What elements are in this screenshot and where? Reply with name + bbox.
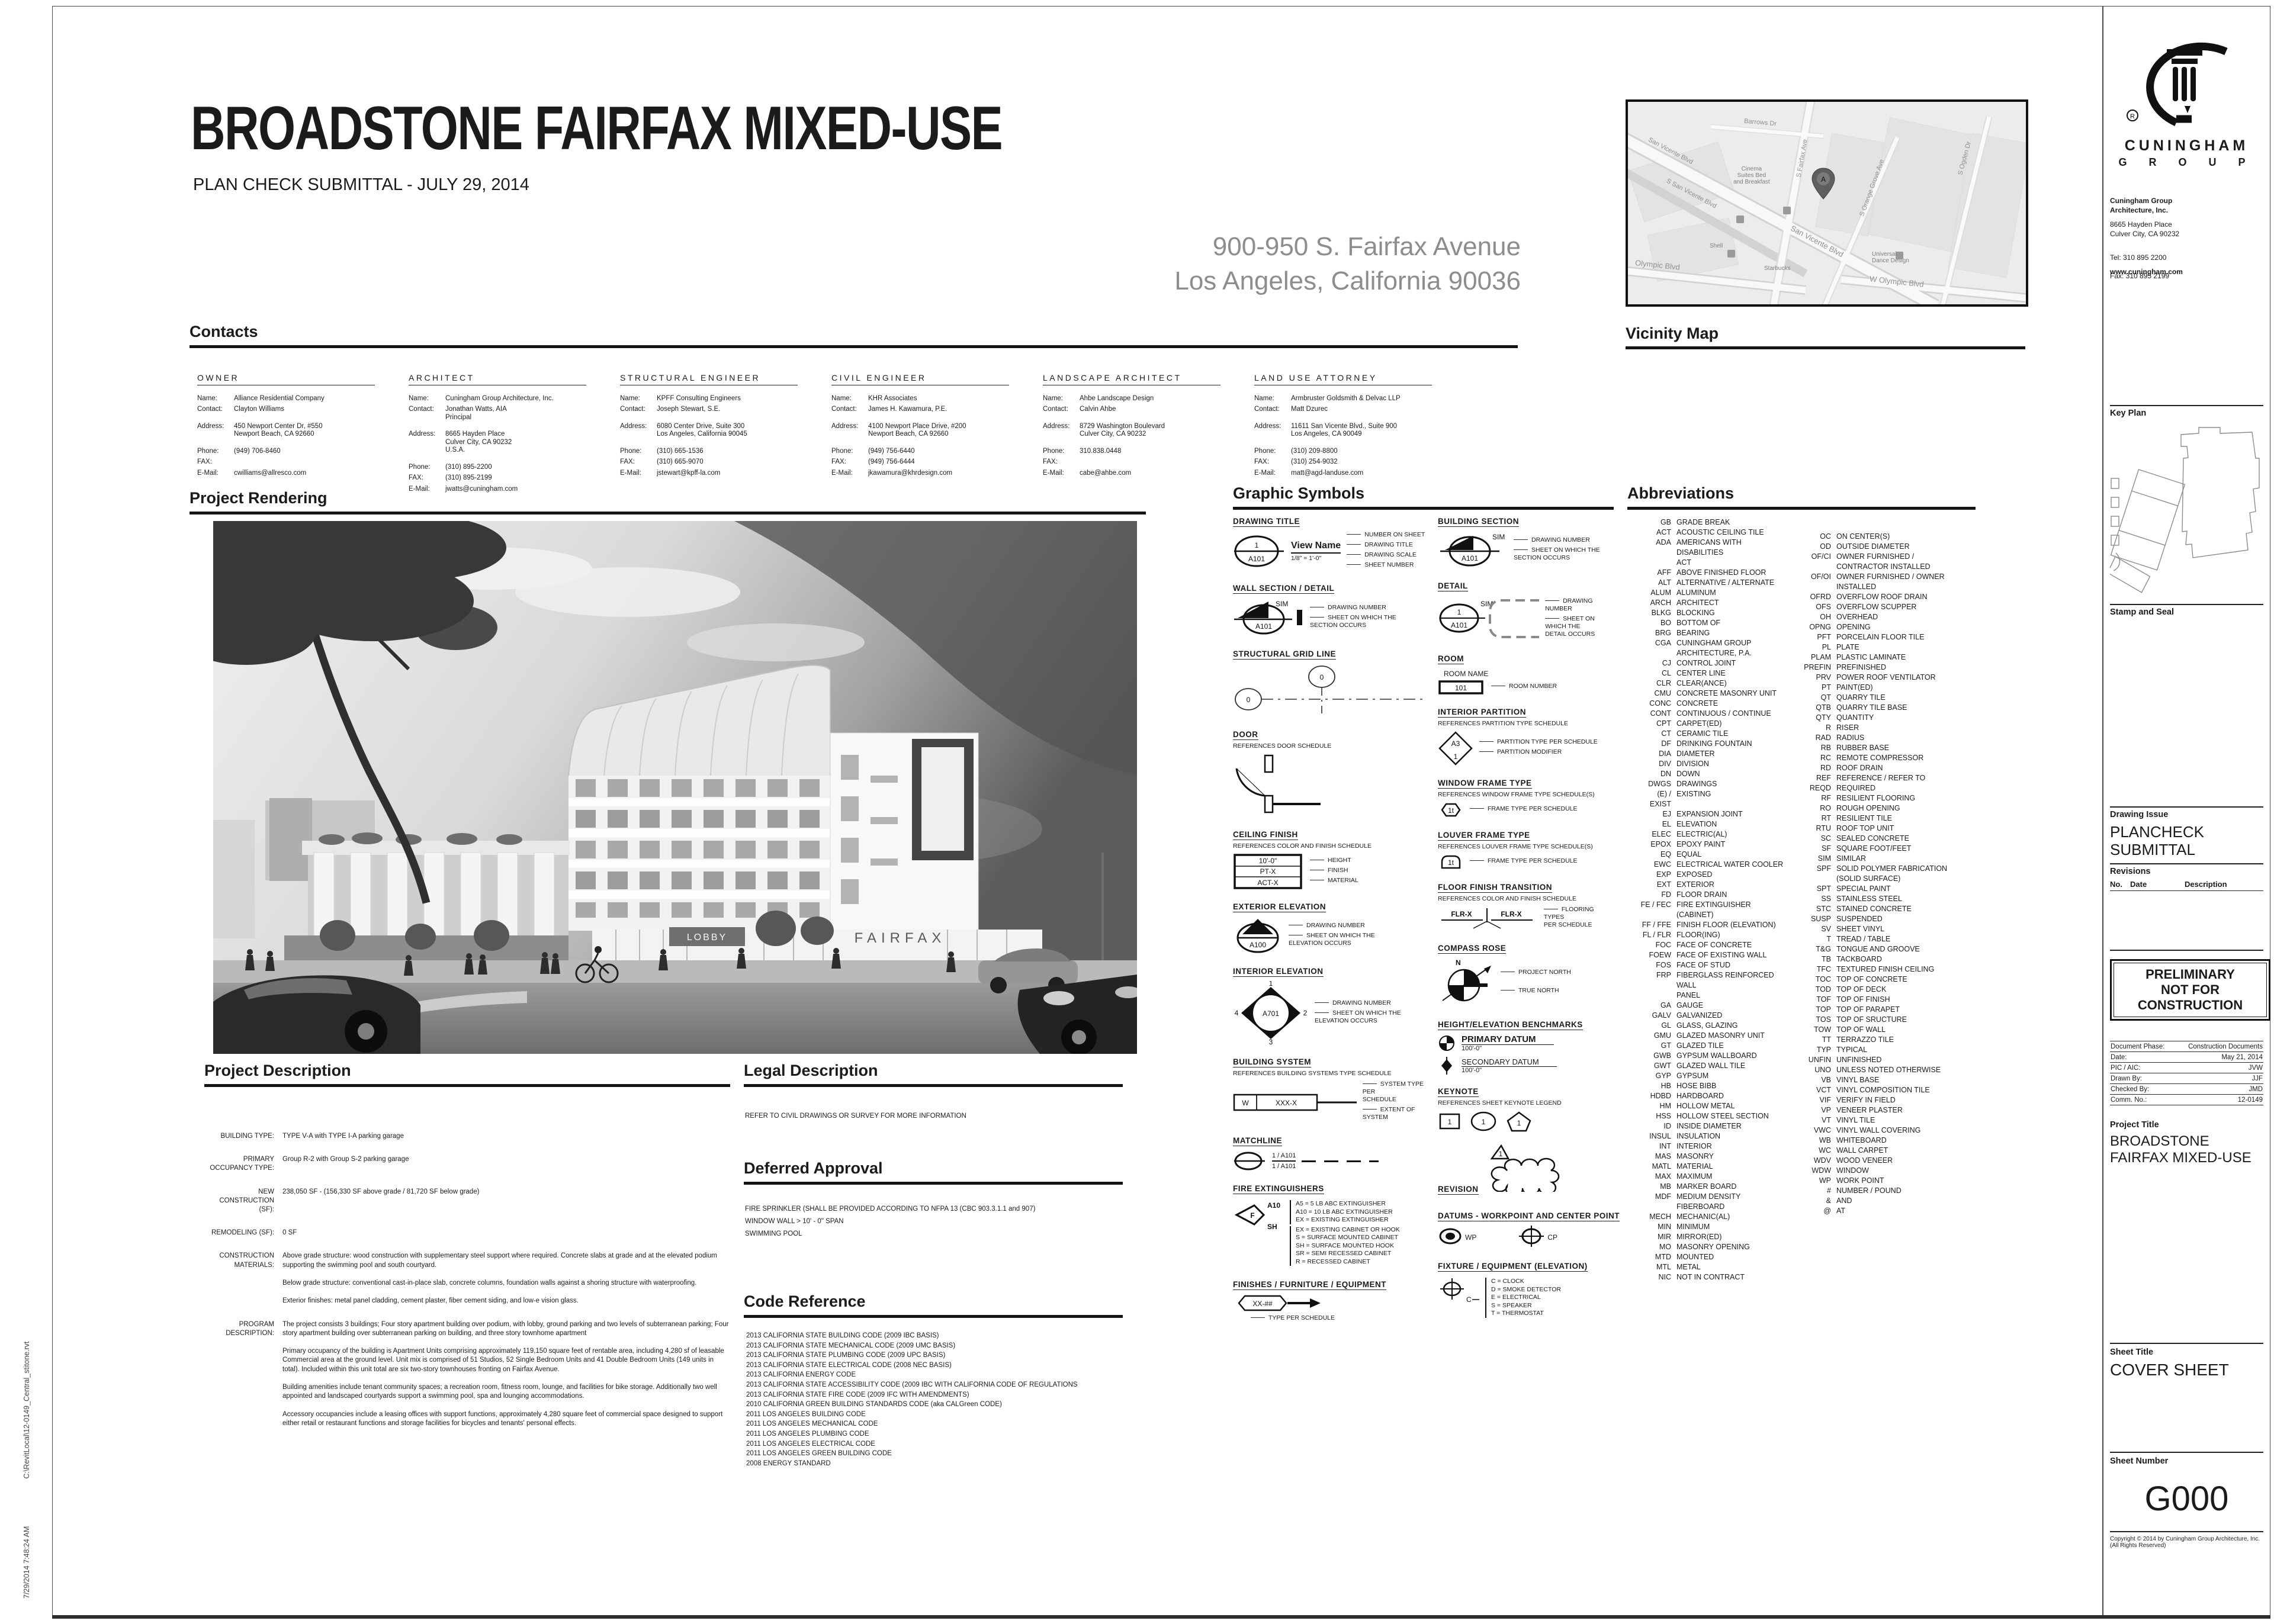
abbreviation-code: HB — [1627, 1081, 1676, 1091]
contact-name: KHR Associates — [868, 395, 1007, 403]
info-value: JJF — [2251, 1075, 2263, 1082]
svg-text:1: 1 — [1482, 1118, 1486, 1126]
abbreviation-code: TT — [1793, 1035, 1836, 1045]
abbreviation-row: EWC ELECTRICAL WATER COOLER — [1627, 860, 1786, 870]
abbreviation-row: T&G TONGUE AND GROOVE — [1793, 944, 1971, 954]
sheet-title-label: Sheet Title — [2110, 1348, 2263, 1357]
abbreviation-code: SIM — [1793, 854, 1836, 864]
abbreviation-code: RB — [1793, 743, 1836, 753]
abbreviation-row: DWGS DRAWINGS — [1627, 779, 1786, 789]
abbreviation-code: FOS — [1627, 960, 1676, 970]
abbreviation-description: SOLID POLYMER FABRICATION (SOLID SURFACE… — [1836, 864, 1971, 884]
gs-fixture-equipment: FIXTURE / EQUIPMENT (ELEVATION) C C = CL… — [1438, 1261, 1615, 1320]
abbreviation-code: RO — [1793, 803, 1836, 813]
contact-email: matt@agd-landuse.com — [1291, 469, 1430, 478]
abbreviation-description: CLEAR(ANCE) — [1676, 678, 1786, 689]
abbreviation-description: ABOVE FINISHED FLOOR — [1676, 568, 1786, 578]
room-number-symbol: 101 — [1438, 680, 1485, 695]
workpoint-symbol — [1438, 1227, 1463, 1247]
abbreviation-code: RD — [1793, 763, 1836, 773]
contact-phone: (310) 209-8800 — [1291, 448, 1430, 456]
svg-text:101: 101 — [1455, 684, 1467, 692]
abbreviation-code: OPNG — [1793, 622, 1836, 632]
abbreviation-row: FF / FFE FINISH FLOOR (ELEVATION) — [1627, 920, 1786, 930]
abbreviation-code: PREFIN — [1793, 663, 1836, 673]
info-row: PIC / AIC: JVW — [2110, 1062, 2263, 1073]
abbreviation-row: VWC VINYL WALL COVERING — [1793, 1125, 1971, 1136]
abbreviation-row: PRV POWER ROOF VENTILATOR — [1793, 673, 1971, 683]
abbreviation-description: RESILIENT FLOORING — [1836, 793, 1971, 803]
pd-label: NEW CONSTRUCTION (SF): — [204, 1188, 282, 1215]
gs-building-section: BUILDING SECTION 1 A101 SIM DRAWING NUMB… — [1438, 516, 1615, 569]
svg-text:1t: 1t — [1448, 858, 1454, 867]
door-symbol — [1233, 753, 1322, 815]
abbreviation-row: OFRD OVERFLOW ROOF DRAIN — [1793, 592, 1971, 602]
abbreviation-code: WB — [1793, 1136, 1836, 1146]
abbreviations-heading: Abbreviations — [1627, 484, 1734, 503]
abbreviation-description: ELECTRIC(AL) — [1676, 829, 1786, 840]
abbreviation-row: INT INTERIOR — [1627, 1141, 1786, 1152]
rendering-fairfax-sign: FAIRFAX — [855, 930, 946, 946]
svg-text:SH: SH — [1267, 1223, 1277, 1231]
abbreviation-description: UNLESS NOTED OTHERWISE — [1836, 1065, 1971, 1075]
abbreviation-description: FACE OF STUD — [1676, 960, 1786, 970]
abbreviation-code: PT — [1793, 683, 1836, 693]
detail-symbol: 1 A101 SIM — [1438, 596, 1539, 642]
svg-text:1: 1 — [1499, 1150, 1503, 1158]
fixture-legend: C = CLOCKD = SMOKE DETECTORE = ELECTRICA… — [1485, 1278, 1561, 1318]
abbreviation-code: VWC — [1793, 1125, 1836, 1136]
abbreviation-row: FOEW FACE OF EXISTING WALL — [1627, 950, 1786, 960]
abbreviation-row: RO ROUGH OPENING — [1793, 803, 1971, 813]
plot-file-path: C:\RevitLocal\12-0149_Central_stitone.rv… — [23, 1342, 31, 1479]
project-rendering-image: LOBBY FAIRFAX — [213, 521, 1137, 1054]
contacts-list: OWNER Name:Alliance Residential Company … — [197, 374, 1500, 496]
drawing-title-symbol: 1 A101 — [1233, 534, 1285, 568]
gs-finishes-furniture-equipment: FINISHES / FURNITURE / EQUIPMENT XX-## T… — [1233, 1279, 1432, 1322]
abbreviation-row: RAD RADIUS — [1793, 733, 1971, 743]
abbreviation-code: WDW — [1793, 1166, 1836, 1176]
deferred-approval-item: WINDOW WALL > 10' - 0" SPAN — [745, 1215, 1136, 1228]
abbreviation-code: VIF — [1793, 1095, 1836, 1105]
abbreviation-code: TOF — [1793, 995, 1836, 1005]
abbreviation-code: TB — [1793, 954, 1836, 964]
abbreviation-description: EQUAL — [1676, 850, 1786, 860]
abbreviation-row: ACT ACOUSTIC CEILING TILE — [1627, 528, 1786, 538]
abbreviation-code: BLKG — [1627, 608, 1676, 618]
abbreviation-row: CMU CONCRETE MASONRY UNIT — [1627, 689, 1786, 699]
svg-text:1: 1 — [1262, 609, 1266, 618]
abbreviation-code: MO — [1627, 1242, 1676, 1252]
firm-phone: Tel: 310 895 2200 Fax: 310 895 2199 — [2110, 244, 2263, 290]
svg-text:1: 1 — [1255, 541, 1259, 549]
abbreviation-description: FIBERGLASS REINFORCED WALL PANEL — [1676, 970, 1786, 1001]
abbreviation-description: STAINED CONCRETE — [1836, 904, 1971, 914]
code-reference-list: 2013 CALIFORNIA STATE BUILDING CODE (200… — [746, 1331, 1161, 1468]
svg-text:N: N — [1456, 959, 1461, 967]
svg-text:2: 2 — [1303, 1009, 1308, 1017]
firm-name-2: G R O U P — [2110, 156, 2263, 169]
project-description-row: NEW CONSTRUCTION (SF): 238,050 SF - (156… — [204, 1188, 730, 1215]
abbreviation-description: MINIMUM — [1676, 1222, 1786, 1232]
abbreviation-row: SC SEALED CONCRETE — [1793, 834, 1971, 844]
abbreviation-description: AND — [1836, 1196, 1971, 1206]
louver-frame-symbol: 1t — [1438, 854, 1464, 870]
abbreviation-description: VENEER PLASTER — [1836, 1105, 1971, 1115]
abbreviation-row: EQ EQUAL — [1627, 850, 1786, 860]
contact-role: CIVIL ENGINEER — [831, 374, 1009, 385]
poi-cinema: Cinema Suites Bed and Breakfast — [1733, 166, 1770, 185]
pd-label: PRIMARY OCCUPANCY TYPE: — [204, 1155, 282, 1173]
abbreviation-code: MAS — [1627, 1152, 1676, 1162]
abbreviation-row: SS STAINLESS STEEL — [1793, 894, 1971, 904]
contact-fax: (310) 895-2199 — [445, 474, 584, 483]
abbreviation-code: MB — [1627, 1182, 1676, 1192]
abbreviation-code: HDBD — [1627, 1091, 1676, 1101]
abbreviation-code: EWC — [1627, 860, 1676, 870]
abbreviation-row: VIF VERIFY IN FIELD — [1793, 1095, 1971, 1105]
contact-card: OWNER Name:Alliance Residential Company … — [197, 374, 409, 496]
abbreviation-code: T — [1793, 934, 1836, 944]
info-value: 12-0149 — [2238, 1096, 2263, 1104]
code-reference-item: 2013 CALIFORNIA STATE FIRE CODE (2009 IF… — [746, 1390, 1161, 1400]
info-label: Comm. No.: — [2111, 1096, 2147, 1104]
abbreviation-row: GWT GLAZED WALL TILE — [1627, 1061, 1786, 1071]
code-reference-item: 2013 CALIFORNIA STATE MECHANICAL CODE (2… — [746, 1341, 1161, 1351]
abbreviation-description: ARCHITECT — [1676, 598, 1786, 608]
abbreviation-row: ALUM ALUMINUM — [1627, 588, 1786, 598]
code-reference-item: 2010 CALIFORNIA GREEN BUILDING STANDARDS… — [746, 1400, 1161, 1410]
project-description-row: BUILDING TYPE: TYPE V-A with TYPE I-A pa… — [204, 1132, 730, 1141]
gs-drawing-title: DRAWING TITLE 1 A101 View Name 1/8" = 1'… — [1233, 516, 1432, 571]
deferred-approval-list: FIRE SPRINKLER (SHALL BE PROVIDED ACCORD… — [745, 1203, 1136, 1240]
abbreviation-description: POWER ROOF VENTILATOR — [1836, 673, 1971, 683]
svg-text:SIM: SIM — [1276, 600, 1288, 608]
ffe-symbol: XX-## — [1233, 1294, 1322, 1312]
abbreviation-description: GYPSUM WALLBOARD — [1676, 1051, 1786, 1061]
abbreviation-row: TOD TOP OF DECK — [1793, 985, 1971, 995]
abbreviation-row: PT PAINT(ED) — [1793, 683, 1971, 693]
project-title-label: Project Title — [2110, 1120, 2263, 1130]
abbreviation-code: SUSP — [1793, 914, 1836, 924]
abbreviation-row: MTL METAL — [1627, 1262, 1786, 1272]
abbreviation-code: T&G — [1793, 944, 1836, 954]
abbreviation-code: FOC — [1627, 940, 1676, 950]
gs-detail: DETAIL 1 A101 SIM DRAWING NUMBER SHEET O… — [1438, 581, 1615, 642]
abbreviation-code: QTB — [1793, 703, 1836, 713]
view-name-sample: View Name — [1291, 541, 1341, 554]
abbreviation-code: MECH — [1627, 1212, 1676, 1222]
abbreviation-code: MTD — [1627, 1252, 1676, 1262]
contact-fax: (310) 665-9070 — [657, 458, 796, 467]
abbreviation-row: TOC TOP OF CONCRETE — [1793, 975, 1971, 985]
svg-text:SIM: SIM — [1492, 533, 1505, 541]
abbreviation-description: VINYL WALL COVERING — [1836, 1125, 1971, 1136]
svg-text:1t: 1t — [1448, 806, 1454, 815]
contact-card: CIVIL ENGINEER Name:KHR Associates Conta… — [831, 374, 1043, 496]
vicinity-map-heading: Vicinity Map — [1626, 324, 1719, 343]
fixture-symbol: C — [1438, 1276, 1479, 1309]
abbreviation-description: VINYL COMPOSITION TILE — [1836, 1085, 1971, 1095]
pd-value: Above grade structure: wood construction… — [282, 1252, 730, 1305]
abbreviation-description: TACKBOARD — [1836, 954, 1971, 964]
abbreviation-code: HM — [1627, 1101, 1676, 1111]
primary-datum-label: PRIMARY DATUM — [1462, 1034, 1554, 1045]
contact-phone: 310.838.0448 — [1080, 448, 1219, 456]
abbreviation-description: GAUGE — [1676, 1001, 1786, 1011]
abbreviation-row: T TREAD / TABLE — [1793, 934, 1971, 944]
firm-block: Cuningham Group Architecture, Inc. — [2110, 197, 2263, 215]
gs-matchline: MATCHLINE 1 / A101 1 / A101 — [1233, 1136, 1432, 1172]
firm-name: CUNINGHAM — [2110, 137, 2263, 155]
abbreviation-code: CL — [1627, 668, 1676, 678]
abbreviation-row: FL / FLR FLOOR(ING) — [1627, 930, 1786, 940]
ceiling-finish-symbol: 10'-0" PT-X ACT-X — [1233, 853, 1304, 890]
code-reference-item: 2013 CALIFORNIA STATE PLUMBING CODE (200… — [746, 1350, 1161, 1361]
info-label: Drawn By: — [2111, 1075, 2142, 1082]
abbreviation-description: WINDOW — [1836, 1166, 1971, 1176]
centerpoint-symbol — [1518, 1226, 1545, 1249]
abbreviation-code: OC — [1793, 532, 1836, 542]
rendering-lobby-sign: LOBBY — [687, 932, 727, 943]
abbreviation-description: HOSE BIBB — [1676, 1081, 1786, 1091]
abbreviation-row: OC ON CENTER(S) — [1793, 532, 1971, 542]
contact-address: 450 Newport Center Dr, #550 Newport Beac… — [234, 423, 373, 439]
abbreviation-code: GA — [1627, 1001, 1676, 1011]
svg-text:10'-0": 10'-0" — [1259, 857, 1277, 865]
abbreviation-row: GB GRADE BREAK — [1627, 517, 1786, 528]
project-description-rule — [204, 1084, 730, 1087]
abbreviation-row: BLKG BLOCKING — [1627, 608, 1786, 618]
contact-name: Alliance Residential Company — [234, 395, 373, 403]
abbreviation-code: TOC — [1793, 975, 1836, 985]
preliminary-stamp: PRELIMINARY NOT FOR CONSTRUCTION — [2110, 959, 2270, 1021]
abbreviation-description: DOWN — [1676, 769, 1786, 779]
abbreviation-description: FLOOR(ING) — [1676, 930, 1786, 940]
abbreviation-code: GYP — [1627, 1071, 1676, 1081]
abbreviation-description: FIRE EXTINGUISHER (CABINET) — [1676, 900, 1786, 920]
abbreviation-description: ALUMINUM — [1676, 588, 1786, 598]
gs-keynote: KEYNOTE REFERENCES SHEET KEYNOTE LEGEND … — [1438, 1086, 1615, 1133]
abbreviation-row: GL GLASS, GLAZING — [1627, 1021, 1786, 1031]
abbreviation-code: MATL — [1627, 1162, 1676, 1172]
project-description-heading: Project Description — [204, 1062, 351, 1080]
abbreviation-code: CT — [1627, 729, 1676, 739]
contact-person: Joseph Stewart, S.E. — [657, 406, 796, 414]
abbreviation-row: UNFIN UNFINISHED — [1793, 1055, 1971, 1065]
poi-starbucks: Starbucks — [1764, 265, 1790, 272]
abbreviation-description: VINYL BASE — [1836, 1075, 1971, 1085]
secondary-datum-value: 100'-0" — [1462, 1067, 1557, 1074]
abbreviation-row: TT TERRAZZO TILE — [1793, 1035, 1971, 1045]
abbreviation-code: BRG — [1627, 628, 1676, 638]
project-description-row: PROGRAM DESCRIPTION: The project consist… — [204, 1320, 730, 1428]
abbreviation-row: FE / FEC FIRE EXTINGUISHER (CABINET) — [1627, 900, 1786, 920]
abbreviation-row: MAX MAXIMUM — [1627, 1172, 1786, 1182]
abbreviation-row: (E) / EXIST EXISTING — [1627, 789, 1786, 809]
abbreviation-code: FD — [1627, 890, 1676, 900]
abbreviation-code: INSUL — [1627, 1131, 1676, 1141]
abbreviation-description: SUSPENDED — [1836, 914, 1971, 924]
abbreviation-row: CPT CARPET(ED) — [1627, 719, 1786, 729]
firm-website: www.cuningham.com — [2110, 268, 2263, 277]
abbreviation-description: AT — [1836, 1206, 1971, 1216]
abbreviation-code: EXP — [1627, 870, 1676, 880]
abbreviation-code: GMU — [1627, 1031, 1676, 1041]
abbreviation-row: CONC CONCRETE — [1627, 699, 1786, 709]
abbreviation-description: QUARRY TILE — [1836, 693, 1971, 703]
abbreviation-row: QTB QUARRY TILE BASE — [1793, 703, 1971, 713]
sheet-bottom-edge — [52, 1615, 2270, 1619]
abbreviation-code: GB — [1627, 517, 1676, 528]
poi-universal: Universal Dance Design — [1872, 251, 1909, 264]
abbreviation-row: TOP TOP OF PARAPET — [1793, 1005, 1971, 1015]
key-plan-label: Key Plan — [2110, 409, 2263, 418]
abbreviation-description: EXPANSION JOINT — [1676, 809, 1786, 819]
abbreviation-code: RAD — [1793, 733, 1836, 743]
code-reference-item: 2011 LOS ANGELES ELECTRICAL CODE — [746, 1439, 1161, 1449]
abbreviation-code: EQ — [1627, 850, 1676, 860]
abbreviation-description: AMERICANS WITH DISABILITIES ACT — [1676, 538, 1786, 568]
abbreviation-description: CARPET(ED) — [1676, 719, 1786, 729]
abbreviation-description: TOP OF PARAPET — [1836, 1005, 1971, 1015]
abbreviation-row: GWB GYPSUM WALLBOARD — [1627, 1051, 1786, 1061]
room-name-sample: ROOM NAME — [1444, 670, 1615, 678]
abbreviation-code: GWB — [1627, 1051, 1676, 1061]
project-main-title: BROADSTONE FAIRFAX MIXED-USE — [191, 94, 1002, 164]
abbreviation-row: PREFIN PREFINISHED — [1793, 663, 1971, 673]
abbreviation-code: GALV — [1627, 1011, 1676, 1021]
contact-address: 8665 Hayden Place Culver City, CA 90232 … — [445, 430, 584, 455]
contact-card: STRUCTURAL ENGINEER Name:KPFF Consulting… — [620, 374, 831, 496]
abbreviation-row: DIA DIAMETER — [1627, 749, 1786, 759]
info-label: Date: — [2111, 1054, 2127, 1061]
gs-exterior-elevation: EXTERIOR ELEVATION 1 A100 DRAWING NUMBER… — [1233, 902, 1432, 954]
contact-email: jwatts@cuningham.com — [445, 485, 584, 494]
abbreviation-code: OD — [1793, 542, 1836, 552]
gs-floor-finish-transition: FLOOR FINISH TRANSITION REFERENCES COLOR… — [1438, 882, 1615, 931]
info-value: JVW — [2249, 1065, 2263, 1072]
svg-text:FLR-X: FLR-X — [1451, 910, 1472, 918]
primary-datum-symbol — [1438, 1034, 1456, 1052]
abbreviation-code: SPT — [1793, 884, 1836, 894]
contact-name: KPFF Consulting Engineers — [657, 395, 796, 403]
gs-structural-grid-line: STRUCTURAL GRID LINE 0 0 — [1233, 649, 1432, 718]
info-row: Document Phase: Construction Documents — [2110, 1041, 2263, 1051]
abbreviation-code: OF/OI — [1793, 572, 1836, 592]
code-reference-item: 2013 CALIFORNIA STATE ACCESSIBILITY CODE… — [746, 1380, 1161, 1390]
project-description-body: BUILDING TYPE: TYPE V-A with TYPE I-A pa… — [204, 1118, 730, 1430]
abbreviation-code: MIR — [1627, 1232, 1676, 1242]
abbreviation-description: WALL CARPET — [1836, 1146, 1971, 1156]
project-rendering-heading: Project Rendering — [189, 489, 327, 507]
building-system-symbol: W XXX-X — [1233, 1092, 1357, 1113]
abbreviation-description: INSULATION — [1676, 1131, 1786, 1141]
abbreviation-code: PFT — [1793, 632, 1836, 642]
drawing-scale-sample: 1/8" = 1'-0" — [1291, 555, 1341, 562]
matchline-dash — [1302, 1160, 1379, 1162]
project-title-value: BROADSTONE FAIRFAX MIXED-USE — [2110, 1133, 2263, 1166]
abbreviation-code: RF — [1793, 793, 1836, 803]
abbreviation-description: GLASS, GLAZING — [1676, 1021, 1786, 1031]
svg-text:4: 4 — [1235, 1009, 1239, 1017]
abbreviation-code: MDF — [1627, 1192, 1676, 1212]
abbreviation-row: & AND — [1793, 1196, 1971, 1206]
abbreviation-row: HDBD HARDBOARD — [1627, 1091, 1786, 1101]
project-address: 900-950 S. Fairfax Avenue Los Angeles, C… — [947, 230, 1521, 298]
revisions-header: No. Date Description — [2110, 880, 2263, 891]
abbreviation-description: OPENING — [1836, 622, 1971, 632]
legal-description-text: REFER TO CIVIL DRAWINGS OR SURVEY FOR MO… — [745, 1112, 1124, 1121]
abbreviation-description: FACE OF EXISTING WALL — [1676, 950, 1786, 960]
contact-role: STRUCTURAL ENGINEER — [620, 374, 798, 385]
abbreviation-description: REFERENCE / REFER TO — [1836, 773, 1971, 783]
abbreviation-code: WP — [1793, 1176, 1836, 1186]
abbreviation-row: EJ EXPANSION JOINT — [1627, 809, 1786, 819]
abbreviation-description: HARDBOARD — [1676, 1091, 1786, 1101]
pd-value: TYPE V-A with TYPE I-A parking garage — [282, 1132, 730, 1141]
firm-address: 8665 Hayden Place Culver City, CA 90232 — [2110, 220, 2263, 239]
abbreviation-row: VP VENEER PLASTER — [1793, 1105, 1971, 1115]
firm-logo: R — [2110, 33, 2263, 136]
svg-text:0: 0 — [1320, 673, 1324, 681]
contact-card: LAND USE ATTORNEY Name:Armbruster Goldsm… — [1254, 374, 1466, 496]
project-description-row: PRIMARY OCCUPANCY TYPE: Group R-2 with G… — [204, 1155, 730, 1173]
svg-text:A101: A101 — [1248, 555, 1265, 563]
abbreviation-description: FINISH FLOOR (ELEVATION) — [1676, 920, 1786, 930]
abbreviation-description: ROUGH OPENING — [1836, 803, 1971, 813]
abbreviation-description: SQUARE FOOT/FEET — [1836, 844, 1971, 854]
gs-wall-section: WALL SECTION / DETAIL 1 A101 SIM DRAWING… — [1233, 583, 1432, 637]
contact-email: cabe@ahbe.com — [1080, 469, 1219, 478]
svg-text:A701: A701 — [1263, 1009, 1279, 1018]
map-marker-label: A — [1821, 175, 1826, 184]
secondary-datum-symbol — [1438, 1057, 1456, 1075]
abbreviation-row: RT RESILIENT TILE — [1793, 813, 1971, 824]
svg-text:W: W — [1242, 1099, 1249, 1107]
abbreviation-row: EXP EXPOSED — [1627, 870, 1786, 880]
contacts-rule — [189, 345, 1518, 348]
abbreviation-description: VINYL TILE — [1836, 1115, 1971, 1125]
abbreviation-description: EXTERIOR — [1676, 880, 1786, 890]
info-value: May 21, 2014 — [2221, 1054, 2263, 1061]
plot-stamp: 7/29/2014 7:48:24 AM C:\RevitLocal\12-01… — [23, 1599, 280, 1607]
abbreviation-code: STC — [1793, 904, 1836, 914]
firm-tel: Tel: 310 895 2200 — [2110, 253, 2263, 263]
code-reference-item: 2011 LOS ANGELES BUILDING CODE — [746, 1410, 1161, 1420]
pd-value: 238,050 SF - (156,330 SF above grade / 8… — [282, 1188, 730, 1215]
gs-revision: REVISION 1 — [1438, 1144, 1615, 1199]
abbreviation-code: FOEW — [1627, 950, 1676, 960]
svg-text:A100: A100 — [1250, 941, 1266, 949]
abbreviation-row: NIC NOT IN CONTRACT — [1627, 1272, 1786, 1282]
abbreviation-description: OWNER FURNISHED / CONTRACTOR INSTALLED — [1836, 552, 1971, 572]
abbreviation-code: AFF — [1627, 568, 1676, 578]
abbreviation-row: SPF SOLID POLYMER FABRICATION (SOLID SUR… — [1793, 864, 1971, 884]
abbreviations-rule — [1627, 507, 1976, 510]
info-row: Drawn By: JJF — [2110, 1073, 2263, 1083]
contact-name: Ahbe Landscape Design — [1080, 395, 1219, 403]
info-row: Comm. No.: 12-0149 — [2110, 1094, 2263, 1105]
contact-fax — [234, 458, 373, 467]
abbreviation-description: TOP OF CONCRETE — [1836, 975, 1971, 985]
abbreviation-description: MAXIMUM — [1676, 1172, 1786, 1182]
exterior-elevation-symbol: 1 A100 — [1233, 916, 1283, 954]
abbreviation-row: INSUL INSULATION — [1627, 1131, 1786, 1141]
gs-benchmarks: HEIGHT/ELEVATION BENCHMARKS PRIMARY DATU… — [1438, 1020, 1615, 1075]
abbreviation-row: MAS MASONRY — [1627, 1152, 1786, 1162]
cover-sheet: 7/29/2014 7:48:24 AM C:\RevitLocal\12-01… — [0, 0, 2274, 1624]
